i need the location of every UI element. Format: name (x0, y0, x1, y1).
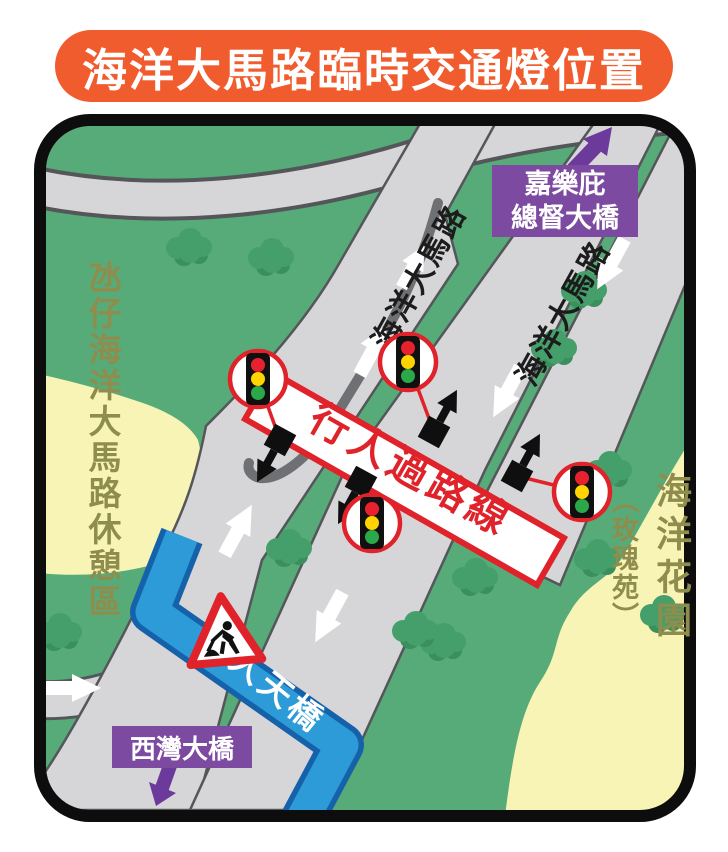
traffic-light-icon (230, 351, 286, 407)
traffic-light-icon (380, 334, 436, 390)
area-label-east: 海洋花園 (645, 472, 697, 644)
page-title: 海洋大馬路臨時交通燈位置 (82, 34, 646, 99)
destination-label-south: 西灣大橋 (112, 726, 252, 768)
destination-north-line1: 嘉樂庇 (525, 167, 606, 201)
traffic-light-icon (344, 495, 400, 551)
title-banner: 海洋大馬路臨時交通燈位置 (55, 30, 673, 102)
destination-north-line2: 總督大橋 (511, 201, 619, 235)
destination-south-text: 西灣大橋 (130, 729, 234, 766)
area-label-west: 氹仔海洋大馬路休憩區 (78, 260, 126, 620)
area-label-east-sub: （玫瑰苑） (604, 486, 643, 631)
traffic-light-icon (554, 464, 610, 520)
page: 海洋大馬路 海洋大馬路 行人過路線 行人天橋 (0, 0, 728, 852)
destination-label-north: 嘉樂庇 總督大橋 (492, 165, 638, 237)
